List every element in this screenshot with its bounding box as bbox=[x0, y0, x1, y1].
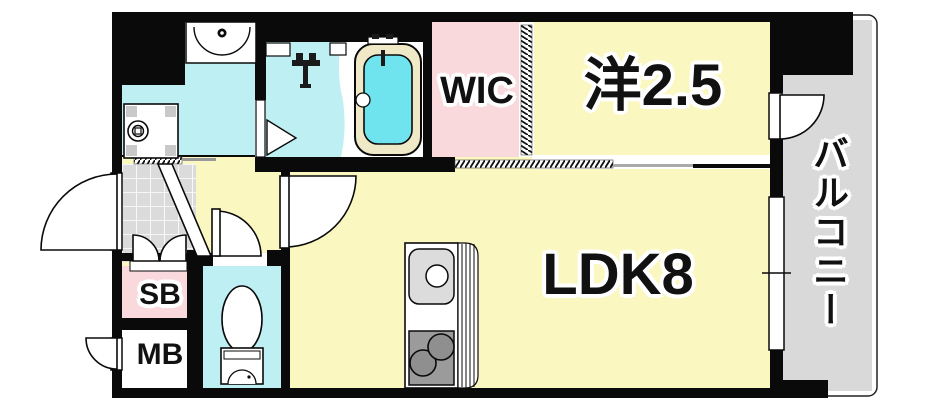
toilet-icon bbox=[221, 286, 263, 384]
western-ldk-track bbox=[613, 164, 693, 167]
washroom-door-track bbox=[182, 158, 216, 161]
western-ldk-thin-wall bbox=[693, 164, 770, 168]
bath-shelf-icon bbox=[266, 43, 290, 56]
room-label-balcony: バルコニー bbox=[804, 122, 852, 342]
bathtub-icon bbox=[355, 34, 421, 155]
meter-box-door-swing bbox=[86, 338, 117, 369]
room-label-wic: WIC bbox=[430, 69, 524, 113]
toilet-door-leaf bbox=[212, 209, 220, 256]
bath-shelf2-icon bbox=[330, 43, 346, 55]
entrance-door-swing bbox=[41, 174, 117, 250]
shoe-box-doors bbox=[130, 261, 187, 271]
floorplan: LDK8 洋2.5 WIC SB MB バルコニー bbox=[0, 0, 930, 406]
room-label-meter-box: MB bbox=[124, 337, 196, 373]
room-label-western: 洋2.5 bbox=[523, 54, 783, 118]
room-label-ldk: LDK8 bbox=[448, 243, 788, 307]
stove-icon bbox=[409, 331, 454, 385]
bathroom-door-leaf bbox=[256, 100, 265, 157]
washing-machine-pan-icon bbox=[124, 104, 178, 158]
ldk-door-leaf bbox=[280, 176, 289, 248]
room-label-shoe-box: SB bbox=[124, 277, 196, 313]
western-ldk-sliding-door bbox=[455, 160, 613, 168]
vanity-sink-icon bbox=[186, 22, 256, 63]
